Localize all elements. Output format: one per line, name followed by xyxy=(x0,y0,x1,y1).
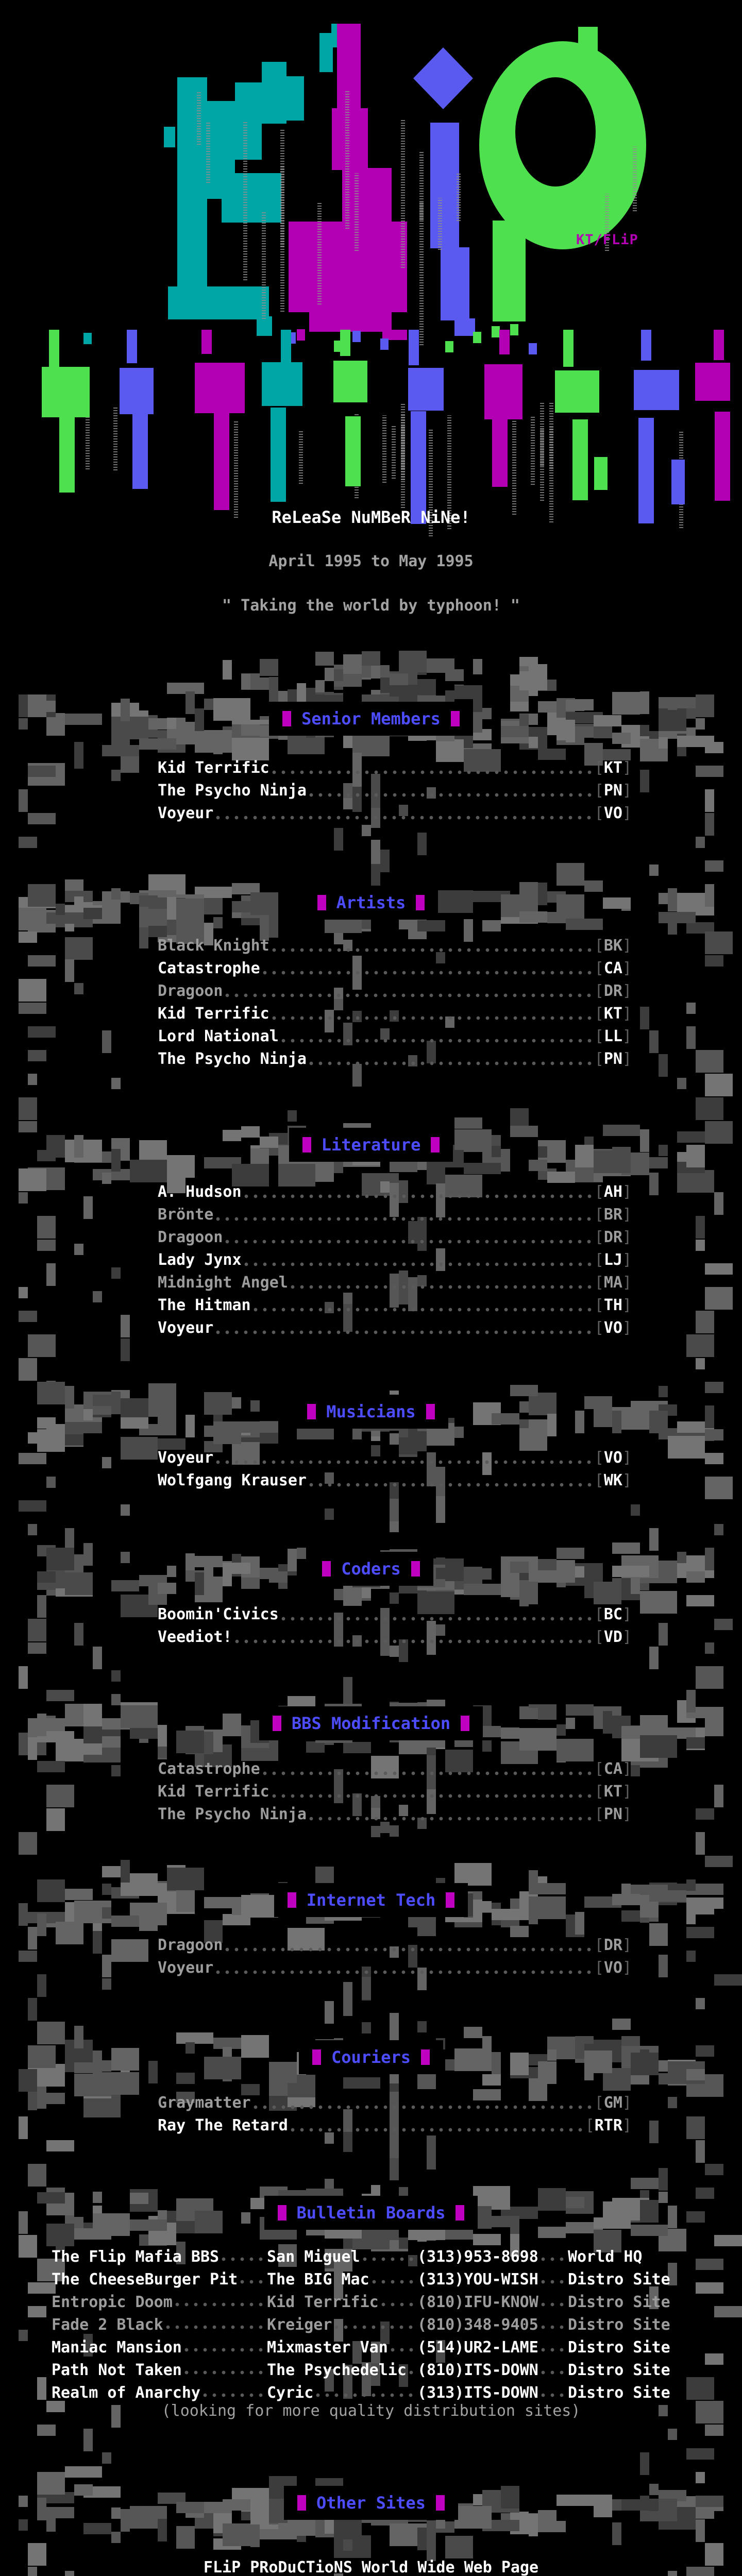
dot-leader xyxy=(184,2369,265,2376)
member-code: [DR] xyxy=(595,1936,632,1954)
dot-leader xyxy=(290,1284,593,1290)
ansi-block xyxy=(445,2536,473,2558)
dot-leader xyxy=(309,1060,593,1066)
bbs-row: The CheeseBurger PitThe BIG Mac(313)YOU-… xyxy=(52,2268,675,2291)
member-code: [LL] xyxy=(595,1027,632,1045)
bbs-phone: (810)ITS-DOWN xyxy=(417,2361,538,2379)
ansi-block xyxy=(408,1916,417,1927)
ansi-block xyxy=(659,737,668,749)
ansi-block xyxy=(696,1666,723,1689)
bullet-square-icon xyxy=(456,2205,464,2221)
dot-leader xyxy=(225,992,592,998)
ansi-block xyxy=(306,688,315,703)
wordmark-glyph xyxy=(184,330,257,526)
ansi-block xyxy=(640,2452,649,2475)
release-title: ReLeaSe NuMBeR NiNe! xyxy=(0,507,742,527)
member-code: [TH] xyxy=(595,1296,632,1314)
member-list: Boomin'Civics[BC]Veediot![VD] xyxy=(0,1603,742,1648)
dot-leader xyxy=(253,2104,593,2110)
ansi-block xyxy=(427,2527,436,2561)
bbs-role: Distro Site xyxy=(568,2384,670,2402)
ansi-block xyxy=(380,850,390,872)
ansi-block xyxy=(260,659,278,676)
dot-leader xyxy=(390,2347,415,2353)
ansi-block xyxy=(343,1742,371,1753)
member-code: [CA] xyxy=(595,959,632,977)
member-name: Wolfgang Krauser xyxy=(158,1471,307,1489)
member-name: Voyeur xyxy=(158,1319,213,1337)
ansi-block xyxy=(111,1078,121,1089)
ansi-block xyxy=(65,2466,102,2478)
ansi-block xyxy=(566,919,603,930)
dot-leader xyxy=(372,2279,415,2285)
ansi-block xyxy=(83,2429,93,2451)
bbs-sysop: Kid Terrific xyxy=(267,2293,379,2311)
section-header: BBS Modification xyxy=(259,1706,483,1740)
bbs-phone: (313)ITS-DOWN xyxy=(417,2384,538,2402)
bbs-phone: (810)348-9405 xyxy=(417,2316,538,2334)
ansi-block xyxy=(436,1496,445,1519)
section-header: Musicians xyxy=(294,1395,448,1429)
ansi-block xyxy=(482,2074,501,2086)
ansi-block xyxy=(482,920,501,931)
ansi-block xyxy=(325,668,334,681)
bbs-sysop: San Miguel xyxy=(267,2248,360,2266)
member-name: Kid Terrific xyxy=(158,1005,269,1023)
distro-note: (looking for more quality distribution s… xyxy=(0,2402,742,2420)
member-code: [VO] xyxy=(595,1319,632,1337)
member-name: Voyeur xyxy=(158,1449,213,1467)
dot-leader xyxy=(184,2347,265,2353)
dot-leader xyxy=(221,2256,265,2262)
wordmark-glyph xyxy=(396,330,468,526)
member-row: Wolfgang Krauser[WK] xyxy=(158,1469,632,1492)
hatch-column xyxy=(317,202,322,304)
flip-logo-art xyxy=(0,0,742,340)
member-code: [VD] xyxy=(595,1628,632,1646)
hatch-column xyxy=(419,152,424,220)
member-code: [PN] xyxy=(595,1050,632,1068)
dot-leader xyxy=(315,2392,415,2398)
member-code: [BR] xyxy=(595,1206,632,1224)
bbs-row: The Flip Mafia BBSSan Miguel(313)953-869… xyxy=(52,2245,675,2268)
hatch-column xyxy=(345,90,349,229)
ansi-block xyxy=(390,1592,399,1604)
ansi-block xyxy=(19,837,37,848)
dot-leader xyxy=(165,2324,265,2330)
ansi-block xyxy=(325,2001,334,2024)
bbs-sysop: Cyric xyxy=(267,2384,313,2402)
bbs-role: Distro Site xyxy=(568,2338,670,2357)
dot-leader xyxy=(381,2301,415,2308)
ansi-block xyxy=(427,2136,436,2170)
section-header: Literature xyxy=(289,1128,453,1162)
member-name: Voyeur xyxy=(158,804,213,822)
ansi-block xyxy=(315,680,325,692)
member-name: Catastrophe xyxy=(158,959,260,977)
ansi-block xyxy=(121,1504,130,1516)
bbs-board-name: Maniac Mansion xyxy=(52,2338,182,2357)
member-name: Lady Jynx xyxy=(158,1251,242,1269)
ansi-block xyxy=(705,1429,723,1440)
ansi-block xyxy=(315,652,334,666)
section-header: Other Sites xyxy=(284,2486,458,2520)
member-code: [LJ] xyxy=(595,1251,632,1269)
bbs-board-name: Entropic Doom xyxy=(52,2293,173,2311)
bbs-board-name: The CheeseBurger Pit xyxy=(52,2270,238,2289)
ansi-block xyxy=(649,1647,659,1669)
section-title: Internet Tech xyxy=(307,1890,435,1910)
ansi-block xyxy=(399,651,427,672)
ansi-block xyxy=(390,1499,399,1521)
logo-signature: KT/FLiP xyxy=(576,232,638,248)
dot-leader xyxy=(541,2369,566,2376)
hatch-column xyxy=(419,202,424,345)
member-row: Kid Terrific[KT] xyxy=(158,756,632,779)
ansi-block xyxy=(241,674,250,689)
dot-leader xyxy=(541,2392,566,2398)
member-code: [DR] xyxy=(595,1228,632,1246)
ansi-block xyxy=(28,1524,37,1535)
dot-leader xyxy=(272,1015,593,1021)
ansi-block xyxy=(93,1647,102,1669)
section-header: Internet Tech xyxy=(274,1883,468,1917)
ansi-block xyxy=(250,2524,260,2547)
ansi-block xyxy=(696,2472,705,2483)
member-list: Catastrophe[CA]Kid Terrific[KT]The Psych… xyxy=(0,1757,742,1825)
dot-leader xyxy=(541,2256,566,2262)
ansi-block xyxy=(454,1863,492,1886)
bbs-role: Distro Site xyxy=(568,2361,670,2379)
ansi-block xyxy=(631,2178,659,2189)
ansi-block xyxy=(362,825,371,836)
member-name: Dragoon xyxy=(158,1228,223,1246)
bbs-board-name: Realm of Anarchy xyxy=(52,2384,200,2402)
bbs-row: Path Not TakenThe Psychedelic(810)ITS-DO… xyxy=(52,2359,675,2381)
member-row: Dragoon[DR] xyxy=(158,1934,632,1956)
bbs-role: World HQ xyxy=(568,2248,643,2266)
ansi-block xyxy=(417,833,427,855)
wordmark-glyph xyxy=(689,330,742,526)
wordmark-glyph xyxy=(622,330,694,526)
member-name: Veediot! xyxy=(158,1628,232,1646)
ansi-block xyxy=(686,2448,714,2460)
member-row: Boomin'Civics[BC] xyxy=(158,1603,632,1625)
dot-leader xyxy=(541,2301,566,2308)
member-row: Ray The Retard[RTR] xyxy=(158,2114,632,2137)
bullet-square-icon xyxy=(278,2205,286,2221)
member-code: [MA] xyxy=(595,1274,632,1292)
ansi-block xyxy=(390,2158,399,2180)
bullet-square-icon xyxy=(317,895,326,910)
ansi-block xyxy=(705,742,723,753)
ansi-block xyxy=(390,673,408,685)
member-name: Kid Terrific xyxy=(158,759,269,777)
member-code: [DR] xyxy=(595,982,632,1000)
ansi-block xyxy=(19,2519,28,2531)
bbs-board-name: The Flip Mafia BBS xyxy=(52,2248,219,2266)
bbs-board-name: Path Not Taken xyxy=(52,2361,182,2379)
member-name: Boomin'Civics xyxy=(158,1605,279,1623)
member-row: A. Hudson[AH] xyxy=(158,1180,632,1203)
ansi-block xyxy=(65,1743,102,1755)
member-list: Black Knight[BK]Catastrophe[CA]Dragoon[D… xyxy=(0,934,742,1070)
member-code: [RTR] xyxy=(585,2116,632,2134)
ansi-block xyxy=(714,1524,723,1535)
ansi-block xyxy=(677,1078,686,1089)
dot-leader xyxy=(281,1616,593,1622)
ansi-block xyxy=(705,860,723,872)
dot-leader xyxy=(290,2127,583,2133)
member-row: Graymatter[GM] xyxy=(158,2091,632,2114)
bullet-square-icon xyxy=(322,1561,331,1577)
member-code: [WK] xyxy=(595,1471,632,1489)
ansi-block xyxy=(454,1117,482,1129)
member-name: The Hitman xyxy=(158,1296,251,1314)
ansi-block xyxy=(334,2519,362,2541)
dot-leader xyxy=(541,2324,566,2330)
ansi-block xyxy=(121,1860,130,1883)
ansi-block xyxy=(19,1666,28,1689)
member-name: A. Hudson xyxy=(158,1183,242,1201)
dot-leader xyxy=(309,792,593,798)
member-code: [VO] xyxy=(595,1959,632,1977)
member-row: Voyeur[VO] xyxy=(158,1446,632,1469)
ansi-block xyxy=(362,651,380,666)
member-name: Midnight Angel xyxy=(158,1274,288,1292)
member-name: Brönte xyxy=(158,1206,213,1224)
ansi-block xyxy=(343,2077,380,2089)
ansi-block xyxy=(102,2452,111,2464)
member-row: Kid Terrific[KT] xyxy=(158,1780,632,1803)
dot-leader xyxy=(541,2347,566,2353)
member-row: Catastrophe[CA] xyxy=(158,957,632,979)
ansi-block xyxy=(158,1747,167,1758)
bbs-sysop: The Psychedelic xyxy=(267,2361,407,2379)
bullet-square-icon xyxy=(411,1561,420,1577)
hatch-column xyxy=(438,198,442,250)
bullet-square-icon xyxy=(288,1892,296,1908)
ansi-block xyxy=(241,2526,250,2537)
section-header: Artists xyxy=(304,886,439,920)
dot-leader xyxy=(225,1946,592,1953)
ansi-block xyxy=(659,2168,668,2191)
member-code: [PN] xyxy=(595,1805,632,1823)
wordmark-glyph xyxy=(477,330,549,526)
bullet-square-icon xyxy=(421,2049,430,2065)
ansi-block xyxy=(696,2140,705,2163)
member-row: The Psycho Ninja[PN] xyxy=(158,1803,632,1825)
hatch-column xyxy=(197,92,201,145)
ansi-block xyxy=(288,1110,297,1122)
ansi-block xyxy=(696,1832,705,1855)
section-header: Coders xyxy=(309,1552,433,1586)
dot-leader xyxy=(244,1193,593,1199)
ansi-block xyxy=(659,2073,668,2084)
section-title: Literature xyxy=(322,1135,421,1155)
ansi-block xyxy=(612,2522,621,2545)
ansi-block xyxy=(158,2519,167,2541)
ansi-block xyxy=(269,677,278,695)
member-name: Ray The Retard xyxy=(158,2116,288,2134)
ansi-block xyxy=(696,1998,705,2009)
section-title: BBS Modification xyxy=(292,1714,450,1733)
hatch-column xyxy=(355,173,359,251)
ansi-block xyxy=(631,1504,640,1516)
wordmark-glyph xyxy=(545,330,617,526)
bbs-phone: (810)IFU-KNOW xyxy=(417,2293,538,2311)
flip-logo: KT/FLiP xyxy=(0,0,742,340)
dot-leader xyxy=(541,2279,566,2285)
member-list: A. Hudson[AH]Brönte[BR]Dragoon[DR]Lady J… xyxy=(0,1180,742,1339)
member-row: Midnight Angel[MA] xyxy=(158,1271,632,1294)
bullet-square-icon xyxy=(302,1137,311,1153)
member-row: Dragoon[DR] xyxy=(158,979,632,1002)
dot-leader xyxy=(272,769,593,775)
member-name: The Psycho Ninja xyxy=(158,1050,307,1068)
ansi-block xyxy=(130,1160,167,1182)
ansi-block xyxy=(390,1825,399,1837)
dot-leader xyxy=(281,1038,593,1044)
bbs-board-name: Fade 2 Black xyxy=(52,2316,163,2334)
ansi-block xyxy=(464,1163,501,1174)
hatch-column xyxy=(457,172,461,221)
bbs-sysop: The BIG Mac xyxy=(267,2270,369,2289)
ansi-block xyxy=(519,671,547,690)
dot-leader xyxy=(215,815,592,821)
bullet-square-icon xyxy=(273,1716,281,1731)
dot-leader xyxy=(225,1239,592,1245)
ansi-block xyxy=(176,2526,195,2549)
bbs-sysop: Mixmaster Van xyxy=(267,2338,388,2357)
dot-leader xyxy=(234,1638,593,1645)
member-name: Catastrophe xyxy=(158,1760,260,1778)
section-title: Couriers xyxy=(331,2047,411,2067)
section-title: Senior Members xyxy=(301,709,441,728)
ansi-block xyxy=(334,669,343,681)
section-title: Coders xyxy=(341,1559,401,1579)
bbs-phone: (313)YOU-WISH xyxy=(417,2270,538,2289)
ansi-block xyxy=(19,1358,37,1381)
ansi-block xyxy=(556,863,584,886)
dot-leader xyxy=(262,970,593,976)
ansi-block xyxy=(482,1740,492,1752)
ansi-block xyxy=(705,1074,733,1096)
bullet-square-icon xyxy=(416,895,425,910)
bbs-phone: (313)953-8698 xyxy=(417,2248,538,2266)
ansi-block xyxy=(714,2235,742,2246)
ansi-block xyxy=(325,1509,334,1520)
member-code: [BC] xyxy=(595,1605,632,1623)
member-name: Black Knight xyxy=(158,937,269,955)
member-name: Dragoon xyxy=(158,1936,223,1954)
dot-leader xyxy=(215,1969,592,1975)
ansi-block xyxy=(696,1097,723,1120)
member-list: Voyeur[VO]Wolfgang Krauser[WK] xyxy=(0,1446,742,1492)
member-code: [GM] xyxy=(595,2094,632,2112)
ansi-block xyxy=(705,1382,723,1393)
bullet-square-icon xyxy=(426,1404,435,1419)
dot-leader xyxy=(244,1261,593,1267)
ansi-block xyxy=(306,1741,325,1753)
dot-leader xyxy=(203,2392,265,2398)
ansi-block xyxy=(668,2429,677,2440)
bbs-row: Maniac MansionMixmaster Van(514)UR2-LAME… xyxy=(52,2336,675,2359)
section-title: Musicians xyxy=(326,1402,415,1421)
ansi-block xyxy=(417,2528,427,2550)
ansi-block xyxy=(473,2234,501,2245)
section-title: Other Sites xyxy=(316,2493,426,2513)
member-name: Dragoon xyxy=(158,982,223,1000)
bbs-role: Distro Site xyxy=(568,2293,670,2311)
hatch-column xyxy=(243,121,247,280)
ansi-block xyxy=(649,1528,659,1551)
member-code: [PN] xyxy=(595,782,632,800)
bbs-role: Distro Site xyxy=(568,2270,670,2289)
ansi-block xyxy=(371,664,380,679)
member-list: Kid Terrific[KT]The Psycho Ninja[PN]Voye… xyxy=(0,756,742,824)
dot-leader xyxy=(253,1307,593,1313)
hatch-column xyxy=(262,211,266,319)
ansi-block xyxy=(223,660,232,680)
bullet-square-icon xyxy=(282,711,291,726)
ansi-block xyxy=(121,2073,130,2084)
ansi-block xyxy=(705,2425,723,2436)
bbs-row: Entropic DoomKid Terrific(810)IFU-KNOWDi… xyxy=(52,2291,675,2313)
ansi-block xyxy=(529,737,538,748)
productions-wordmark xyxy=(0,330,742,526)
member-row: Black Knight[BK] xyxy=(158,934,632,957)
ansi-block xyxy=(696,2519,705,2542)
dot-leader xyxy=(309,1482,593,1488)
bullet-square-icon xyxy=(307,1404,316,1419)
ansi-block xyxy=(371,1826,380,1837)
bullet-square-icon xyxy=(297,2495,306,2511)
ansi-block xyxy=(705,1856,733,1867)
member-row: Lord National[LL] xyxy=(158,1025,632,1047)
wordmark-glyph xyxy=(34,330,106,526)
ansi-block xyxy=(696,837,705,848)
www-page-label: FLiP PRoDuCTioNS World Wide Web Page xyxy=(0,2558,742,2576)
ansi-block xyxy=(362,2022,371,2033)
section-header: Bulletin Boards xyxy=(264,2196,478,2230)
ansi-block xyxy=(454,685,482,699)
member-name: The Psycho Ninja xyxy=(158,782,307,800)
hatch-column xyxy=(401,120,405,268)
ansi-block xyxy=(445,669,464,681)
section-title: Artists xyxy=(336,893,406,912)
member-code: [CA] xyxy=(595,1760,632,1778)
section-header: Couriers xyxy=(299,2040,443,2074)
wordmark-glyph xyxy=(325,330,397,526)
ansi-block xyxy=(111,2532,121,2543)
ansi-block xyxy=(111,1694,121,1705)
section-title: Bulletin Boards xyxy=(297,2203,446,2223)
member-row: Dragoon[DR] xyxy=(158,1226,632,1248)
member-row: Voyeur[VO] xyxy=(158,802,632,824)
dot-leader xyxy=(240,2279,265,2285)
member-row: Veediot![VD] xyxy=(158,1625,632,1648)
member-row: Catastrophe[CA] xyxy=(158,1757,632,1780)
ansi-block xyxy=(28,1737,37,1760)
bullet-square-icon xyxy=(431,1137,440,1153)
wordmark-glyph xyxy=(109,330,181,526)
ansi-block xyxy=(705,2164,723,2175)
bullet-square-icon xyxy=(451,711,460,726)
ansi-block xyxy=(28,2164,46,2187)
member-name: Lord National xyxy=(158,1027,279,1045)
member-row: The Psycho Ninja[PN] xyxy=(158,1047,632,1070)
